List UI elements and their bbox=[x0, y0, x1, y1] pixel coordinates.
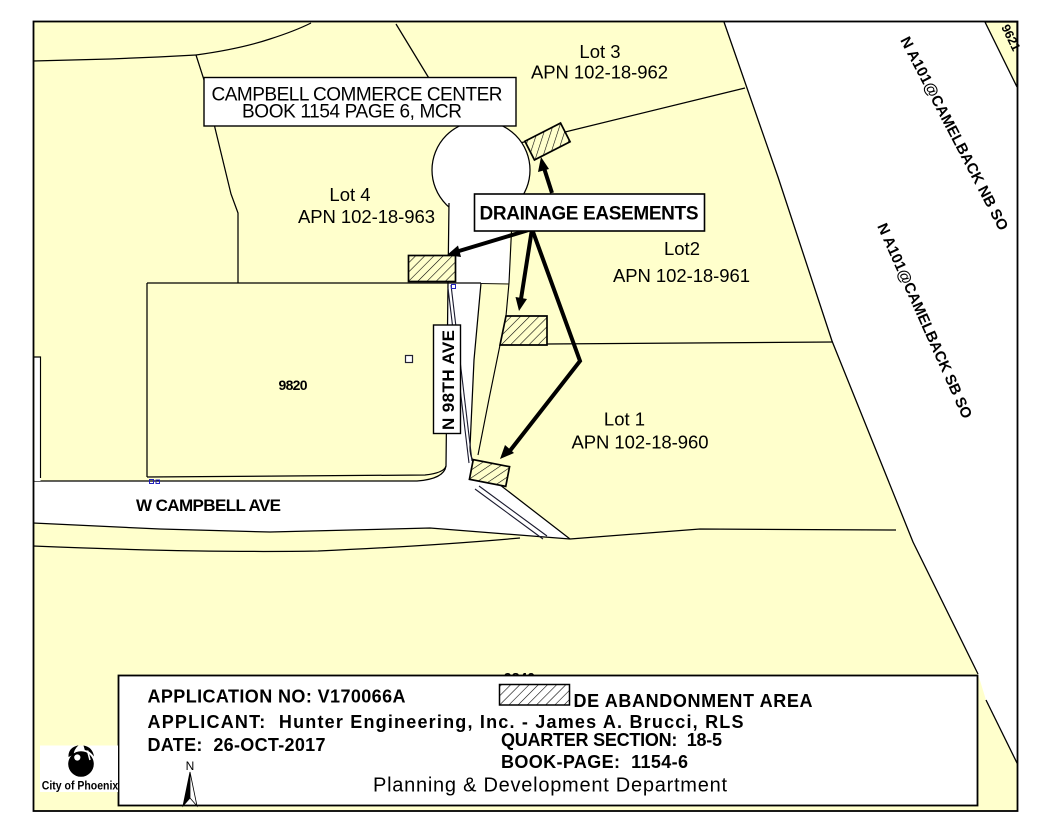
svg-text:N: N bbox=[186, 759, 195, 773]
svg-text:BOOK 1154 PAGE 6, MCR: BOOK 1154 PAGE 6, MCR bbox=[242, 102, 462, 123]
svg-text:DATE: 26-OCT-2017: DATE: 26-OCT-2017 bbox=[148, 735, 326, 755]
svg-text:APN 102-18-961: APN 102-18-961 bbox=[613, 265, 750, 286]
svg-text:9820: 9820 bbox=[279, 377, 308, 393]
svg-text:QUARTER SECTION: 18-5: QUARTER SECTION: 18-5 bbox=[501, 730, 722, 750]
svg-text:DE ABANDONMENT AREA: DE ABANDONMENT AREA bbox=[574, 691, 813, 711]
svg-text:APN 102-18-963: APN 102-18-963 bbox=[298, 206, 435, 227]
svg-text:Lot2: Lot2 bbox=[664, 238, 700, 259]
svg-text:APPLICATION NO: V170066A: APPLICATION NO: V170066A bbox=[148, 687, 406, 707]
svg-text:Lot 3: Lot 3 bbox=[579, 41, 620, 62]
svg-text:Lot 4: Lot 4 bbox=[329, 184, 370, 205]
svg-text:BOOK-PAGE: 1154-6: BOOK-PAGE: 1154-6 bbox=[501, 752, 688, 772]
svg-text:DRAINAGE EASEMENTS: DRAINAGE EASEMENTS bbox=[480, 204, 699, 225]
svg-text:Lot 1: Lot 1 bbox=[604, 409, 645, 430]
svg-text:APPLICANT: Hunter Engineering: APPLICANT: Hunter Engineering, Inc. - Ja… bbox=[148, 712, 744, 732]
svg-text:Planning & Development Departm: Planning & Development Department bbox=[373, 775, 727, 797]
svg-text:W CAMPBELL AVE: W CAMPBELL AVE bbox=[136, 496, 281, 515]
svg-text:N 98TH AVE: N 98TH AVE bbox=[439, 330, 458, 430]
svg-text:APN 102-18-962: APN 102-18-962 bbox=[531, 62, 668, 83]
svg-text:City of Phoenix: City of Phoenix bbox=[42, 781, 119, 793]
svg-text:APN 102-18-960: APN 102-18-960 bbox=[572, 432, 709, 453]
